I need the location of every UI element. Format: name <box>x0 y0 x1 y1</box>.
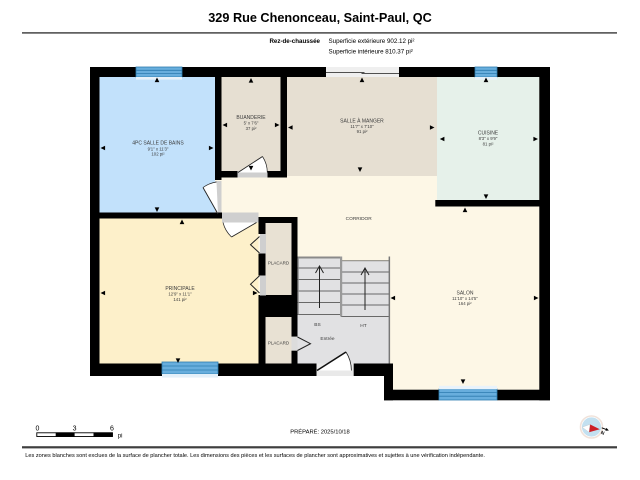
svg-text:BS: BS <box>314 322 320 328</box>
svg-text:PLACARD: PLACARD <box>268 261 290 266</box>
svg-text:11'10" x 14'5": 11'10" x 14'5" <box>452 296 478 301</box>
svg-text:141 pi²: 141 pi² <box>173 297 187 302</box>
svg-text:Entrée: Entrée <box>320 336 334 342</box>
svg-text:Superficie extérieure 902.12 p: Superficie extérieure 902.12 pi² <box>329 38 415 45</box>
svg-text:3: 3 <box>73 426 77 433</box>
svg-text:9'1" x 11'3": 9'1" x 11'3" <box>148 146 169 151</box>
svg-text:Rez-de-chaussée: Rez-de-chaussée <box>269 38 320 45</box>
svg-text:PRÉPARÉ: 2025/10/18: PRÉPARÉ: 2025/10/18 <box>290 429 350 436</box>
svg-text:102 pi²: 102 pi² <box>151 152 165 157</box>
svg-text:164 pi²: 164 pi² <box>458 301 472 306</box>
svg-text:pi: pi <box>118 434 123 440</box>
svg-text:37 pi²: 37 pi² <box>246 126 257 131</box>
svg-text:Superficie intérieure 810.37 p: Superficie intérieure 810.37 pi² <box>329 49 413 56</box>
svg-text:12'9" x 11'1": 12'9" x 11'1" <box>168 292 192 297</box>
svg-text:6: 6 <box>110 426 114 433</box>
svg-text:Les zones blanches sont exclue: Les zones blanches sont exclues de la su… <box>25 453 485 459</box>
svg-text:81 pi²: 81 pi² <box>483 141 494 146</box>
svg-text:CORRIDOR: CORRIDOR <box>346 216 373 222</box>
svg-text:0: 0 <box>35 426 39 433</box>
svg-text:PLACARD: PLACARD <box>268 341 290 346</box>
svg-text:5' x 7'6": 5' x 7'6" <box>244 121 259 126</box>
svg-text:11'7" x 7'10": 11'7" x 7'10" <box>350 124 374 129</box>
svg-text:8'3" x 9'9": 8'3" x 9'9" <box>479 136 498 141</box>
svg-text:HT: HT <box>360 323 366 329</box>
svg-text:329 Rue Chenonceau, Saint-Paul: 329 Rue Chenonceau, Saint-Paul, QC <box>208 11 432 25</box>
svg-text:91 pi²: 91 pi² <box>357 129 368 134</box>
